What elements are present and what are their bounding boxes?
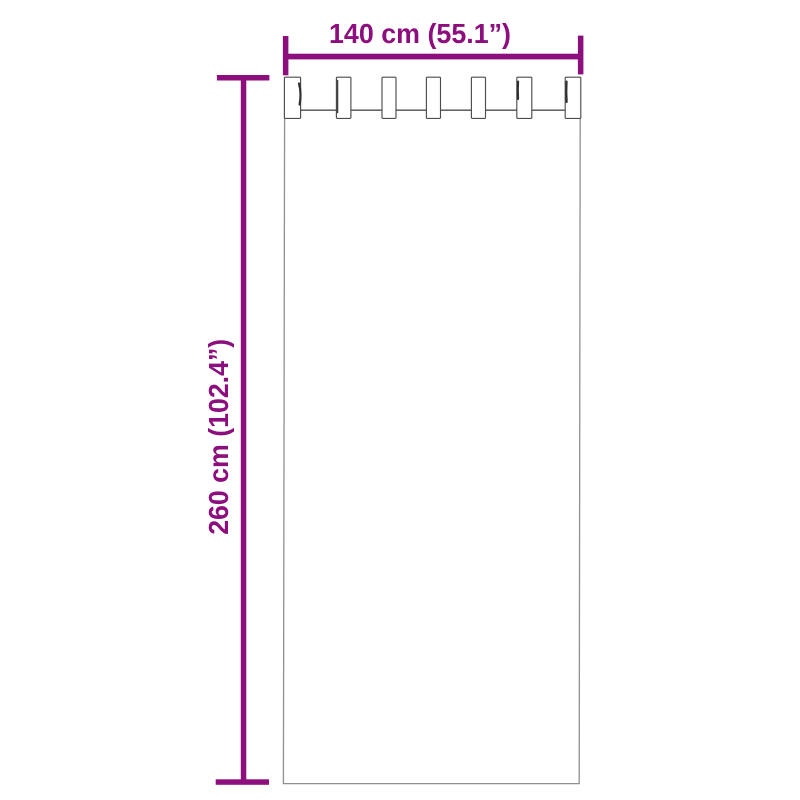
svg-text:260 cm (102.4”): 260 cm (102.4”): [203, 339, 234, 535]
svg-text:140 cm (55.1”): 140 cm (55.1”): [329, 18, 511, 49]
